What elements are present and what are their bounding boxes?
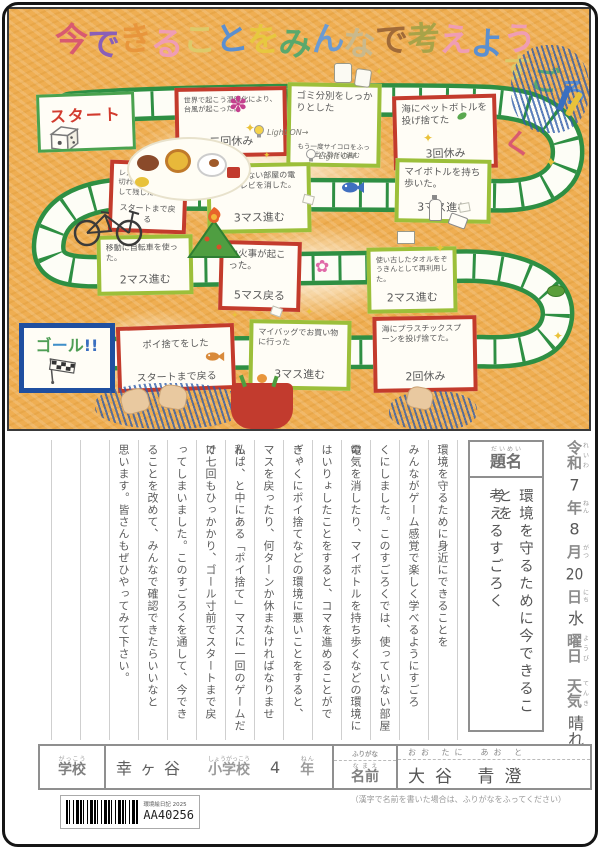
name-value-cell: おお たに あお と 大谷 青澄 xyxy=(398,746,590,788)
dice-icon xyxy=(46,122,81,152)
sparkle-icon: ✦ xyxy=(245,121,255,135)
card-action: 3マス進む xyxy=(258,365,342,382)
light-on-doodle: Light ON→ xyxy=(253,125,309,139)
essay-column-empty xyxy=(80,440,109,740)
school-value-cell: 幸ヶ谷 小学校しょうがっこう 4 年ねん xyxy=(106,746,332,788)
name-label-cell: ふりがな 名前なまえ xyxy=(332,746,398,788)
school-name-value: 幸ヶ谷 xyxy=(116,755,188,779)
essay-column: 私は、と中にある「ポイ捨て」マスに一回のゲームだけ xyxy=(225,440,254,740)
card-text: 使い古したタオルをぞうきんとして再利用した。 xyxy=(376,254,448,283)
card-text: ゴミ分別をしっかりとした xyxy=(296,90,372,116)
furigana-label: ふりがな xyxy=(334,746,396,761)
card-text: 海にペットボトルを投げ捨てた xyxy=(401,102,488,129)
trash-bag-icon xyxy=(334,63,352,83)
year-value: 7 xyxy=(565,477,584,493)
month-unit: 月がつ xyxy=(565,544,583,559)
goal-box: ゴール!! xyxy=(19,323,115,393)
lightbulb-icon xyxy=(305,149,317,163)
envelope-icon xyxy=(397,231,415,244)
food-bubble xyxy=(127,137,251,201)
year-unit: 年ねん xyxy=(565,500,583,515)
sparkle-icon: ✦ xyxy=(545,155,557,171)
corn-icon xyxy=(135,177,149,187)
grade-value: 4 xyxy=(270,758,280,777)
era-label: 令和れいわ xyxy=(565,440,583,470)
weekday-value: 水 xyxy=(565,610,584,626)
weather-value: 晴れ xyxy=(565,715,584,747)
essay-column: 電気を消したり、マイボトルを持ち歩くなどの環境に xyxy=(341,440,370,740)
card-action: 2マス進む xyxy=(376,288,448,305)
essay-column: で七回もひっかかり、ゴール寸前でスタートまで戻 xyxy=(196,440,225,740)
card-action: 5マス戻る xyxy=(227,286,291,304)
bottle-cap-icon xyxy=(432,195,437,199)
shopping-bag-doodle xyxy=(231,383,293,429)
essay-column: ぎゃくにポイ捨てなどの環境に悪いことをすると、 xyxy=(283,440,312,740)
card-action: 2マス進む xyxy=(106,270,184,287)
pizza-icon xyxy=(165,149,191,173)
day-value: 20 xyxy=(565,566,584,582)
vegetable-icon xyxy=(257,374,267,383)
drawing-area: 今できることをみんなで考えよう すごろく スタート ゴール!! xyxy=(7,7,591,431)
name-label: 名前なまえ xyxy=(334,761,396,788)
grade-unit-label: 年ねん xyxy=(300,756,314,779)
burning-mountain-icon xyxy=(185,205,243,261)
school-label: 学校がっこう xyxy=(40,746,106,788)
school-name-table: 学校がっこう 幸ヶ谷 小学校しょうがっこう 4 年ねん ふりがな 名前なまえ お… xyxy=(38,744,592,790)
card-action: スタートまで戻る xyxy=(126,366,226,384)
day-unit: 日にち xyxy=(565,589,583,604)
essay-column: みんながゲーム感覚で楽しく学べるようにすごろ xyxy=(399,440,428,740)
sparkle-icon: ✦ xyxy=(375,67,383,78)
light-off-doodle: Light OFF xyxy=(305,149,357,163)
checkered-flag-icon xyxy=(39,356,85,384)
sparkle-icon: ✦ xyxy=(423,131,433,145)
essay-column: はいりょしたことをすると、コマを進めることができ、 xyxy=(312,440,341,740)
start-box: スタート xyxy=(36,91,136,152)
board-title: 今できることをみんなで考えよう xyxy=(55,13,535,61)
essay-column: ることを改めて、みんなで確認できたらいいなと xyxy=(138,440,167,740)
bicycle-icon xyxy=(71,201,145,247)
fish-icon xyxy=(205,351,225,362)
sea-scribble xyxy=(511,45,589,133)
paper-scrap xyxy=(458,202,470,213)
title-box-header: 題名だいめい xyxy=(470,442,542,478)
essay-column: マスを戻ったり、何ターンか休まなければなりません。 xyxy=(254,440,283,740)
card-text: マイバッグでお買い物に行った xyxy=(258,327,342,349)
sparkle-icon: ✦ xyxy=(435,241,445,255)
name-value: 大谷 青澄 xyxy=(398,760,590,788)
food-plate-icon xyxy=(137,155,159,171)
trash-bag-icon xyxy=(354,68,372,88)
essay-body: 環境を守るために身近にできることを みんながゲーム感覚で楽しく学べるようにすごろ… xyxy=(52,440,458,740)
title-box: 題名だいめい 環境を守るために今できることを 考えるすごろく xyxy=(468,440,544,732)
name-furigana-value: おお たに あお と xyxy=(398,746,590,760)
sparkle-icon: ✦ xyxy=(305,307,313,318)
sparkle-icon: ✦ xyxy=(263,151,271,161)
light-off-label: Light OFF xyxy=(319,152,357,161)
weekday-unit: 曜日ようび xyxy=(565,633,583,663)
furigana-note: （漢字で名前を書いた場合は、ふりがなをふってください） xyxy=(351,794,566,805)
board-card-plastic-spoon: 海にプラスチックスプーンを投げ捨てた。 2回休み xyxy=(372,315,477,393)
blossom-icon: ✿ xyxy=(315,257,329,277)
essay-column: くにしました。このすごろくでは、使っていない部屋の xyxy=(370,440,399,740)
goal-label: ゴール!! xyxy=(29,332,105,356)
barcode-icon xyxy=(66,800,138,824)
sparkle-icon: ✦ xyxy=(553,329,563,343)
card-text: 海にプラスチックスプーンを投げ捨てた。 xyxy=(381,323,467,345)
fish-icon xyxy=(341,181,365,194)
essay-title-line: 環境を守るために今できることを xyxy=(506,488,536,730)
weather-label: 天気てんき xyxy=(565,678,583,708)
bottle-icon xyxy=(429,199,442,221)
barcode-box: 環境絵日記 2025 AA40256 xyxy=(60,795,200,829)
essay-column: ってしまいました。このすごろくを通して、今でき xyxy=(167,440,196,740)
light-on-label: Light ON→ xyxy=(267,128,309,137)
essay-title-line: 考えるすごろく xyxy=(476,488,506,730)
essay-title: 環境を守るために今できることを 考えるすごろく xyxy=(470,478,542,730)
month-value: 8 xyxy=(565,521,584,537)
food-icon xyxy=(209,159,219,167)
essay-column: 思います。皆さんもぜひやってみて下さい。 xyxy=(109,440,138,740)
school-type-label: 小学校しょうがっこう xyxy=(208,756,250,779)
sparkle-icon: ✦ xyxy=(231,311,239,321)
beetle-icon xyxy=(547,285,565,297)
flower-icon: ✽ xyxy=(229,93,247,118)
environment-diary-sheet: 今できることをみんなで考えよう すごろく スタート ゴール!! xyxy=(0,0,600,849)
card-text: マイボトルを持ち歩いた。 xyxy=(404,166,482,192)
date-column: 令和れいわ 7 年ねん 8 月がつ 20 日にち 水 曜日ようび 天気てんき 晴… xyxy=(550,440,594,772)
barcode-code: AA40256 xyxy=(143,808,194,822)
barcode-label: 環境絵日記 2025 xyxy=(143,802,194,809)
board-card-my-bottle: マイボトルを持ち歩いた。 3マス進む xyxy=(394,158,491,224)
essay-column-empty xyxy=(51,440,80,740)
board-card-towel: 使い古したタオルをぞうきんとして再利用した。 2マス進む xyxy=(366,246,457,314)
essay-column: 環境を守るために身近にできることを xyxy=(428,440,457,740)
juice-box-icon xyxy=(227,167,240,178)
card-action: 2回休み xyxy=(382,367,468,384)
